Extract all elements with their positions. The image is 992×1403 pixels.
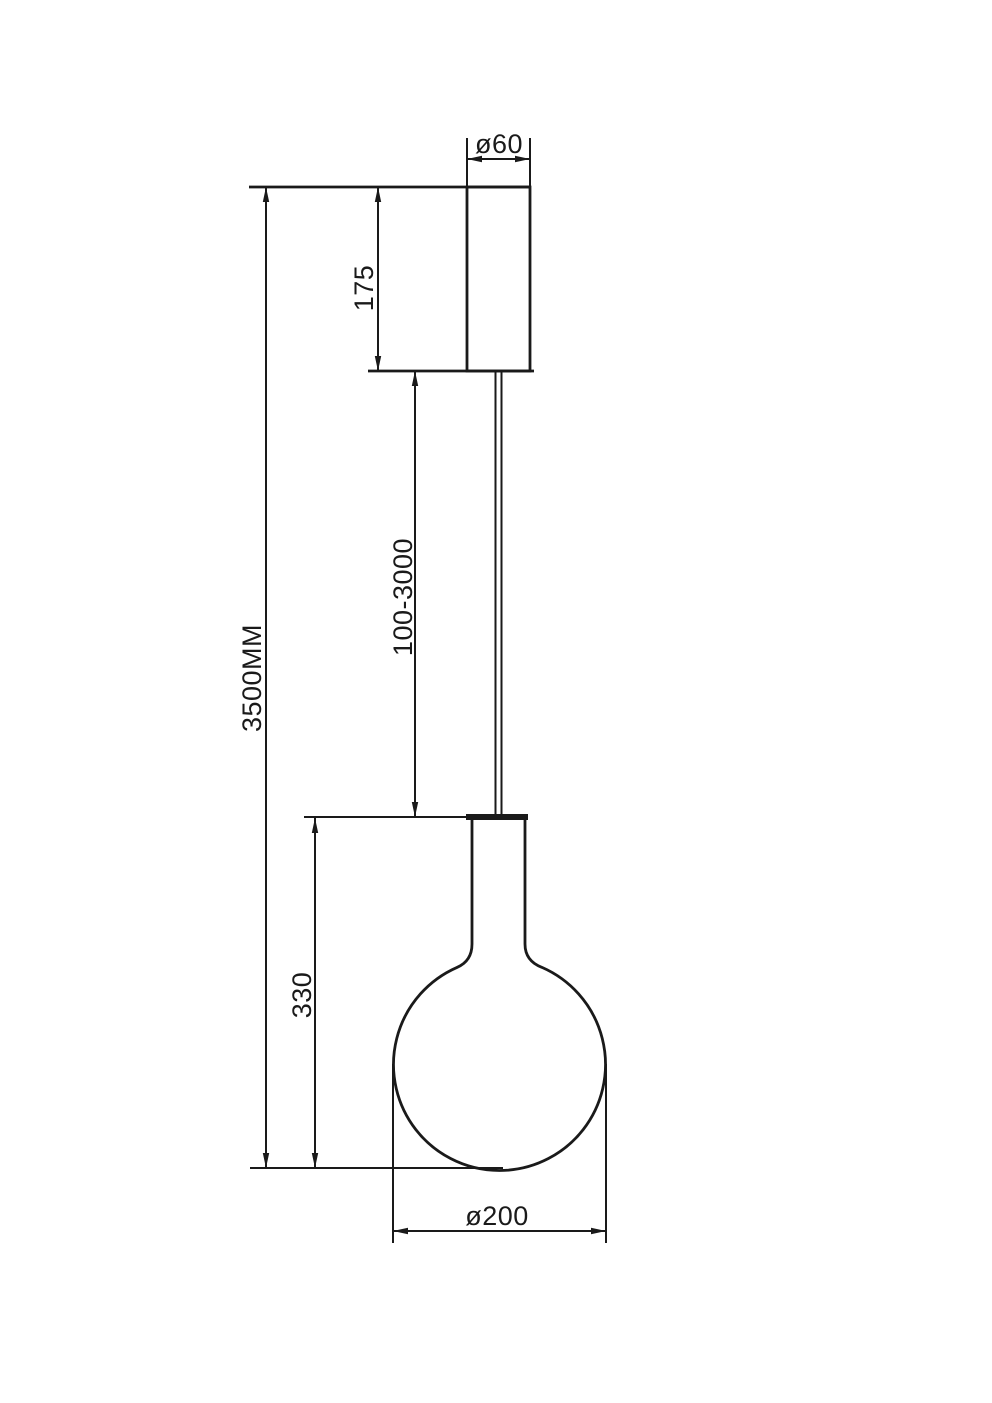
arrow-up-icon [375, 187, 381, 202]
dim-canopy-height-label: 175 [349, 265, 379, 312]
dim-canopy-diameter: ø60 [467, 129, 530, 187]
dim-shade-diameter: ø200 [393, 1064, 606, 1243]
arrow-up-icon [412, 371, 418, 386]
dim-suspension-length-label: 100-3000 [388, 538, 418, 656]
dim-overall-height: 3500MM [237, 187, 269, 1168]
arrow-left-icon [393, 1228, 408, 1234]
arrow-up-icon [263, 187, 269, 202]
drawing-sheet: 3500MM 330 175 100-3000 [0, 0, 992, 1403]
arrow-down-icon [312, 1153, 318, 1168]
dim-lamp-section: 330 [287, 818, 318, 1168]
lamp-outline [249, 187, 605, 1171]
dim-canopy-height: 175 [349, 187, 381, 371]
canopy-outline [467, 187, 530, 371]
arrow-right-icon [591, 1228, 606, 1234]
dim-lamp-section-label: 330 [287, 972, 317, 1019]
dim-suspension-length: 100-3000 [388, 371, 418, 817]
arrow-up-icon [312, 818, 318, 833]
arrow-down-icon [412, 802, 418, 817]
socket-cap [466, 814, 528, 820]
bulb-outline [394, 820, 606, 1171]
arrow-down-icon [375, 356, 381, 371]
dim-shade-diameter-label: ø200 [465, 1201, 529, 1231]
pendant-lamp-dimension-drawing: 3500MM 330 175 100-3000 [0, 0, 992, 1403]
dim-overall-height-label: 3500MM [237, 624, 267, 732]
dim-canopy-diameter-label: ø60 [475, 129, 523, 159]
arrow-down-icon [263, 1153, 269, 1168]
